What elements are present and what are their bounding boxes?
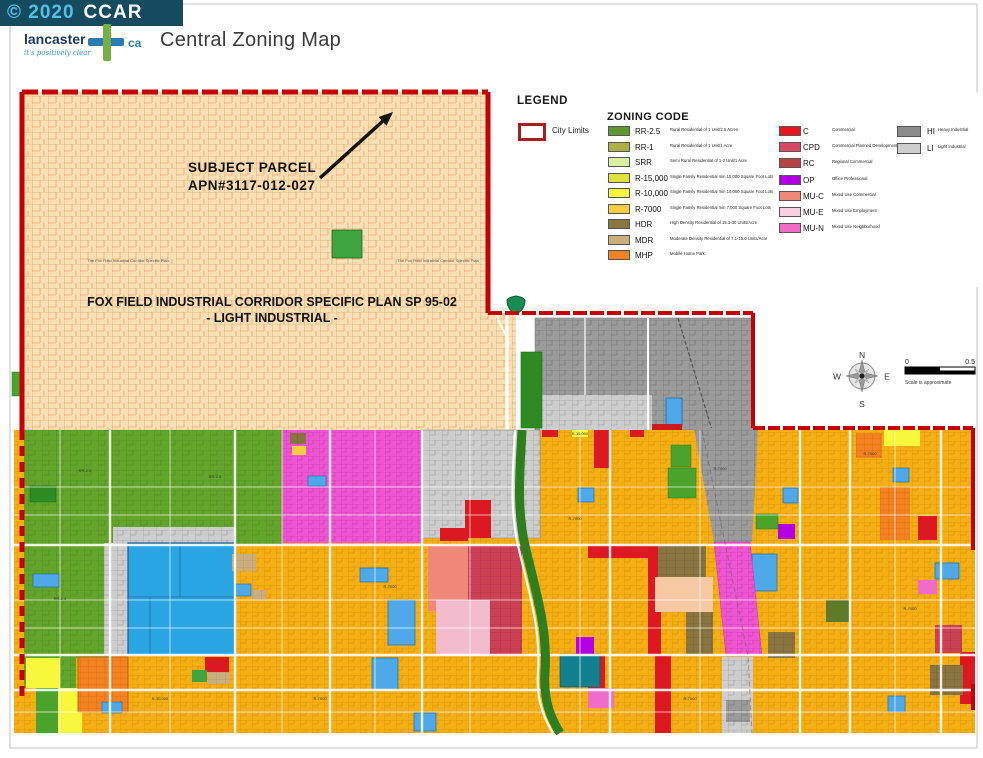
parcel-label: R-7000 xyxy=(863,451,877,456)
compass-west-label: W xyxy=(833,372,841,382)
city-limits-swatch xyxy=(518,123,546,141)
legend-row-MHP: MHPMobile Home Park xyxy=(608,250,778,266)
parcel-label: R-7000 xyxy=(683,696,697,701)
legend-desc-label: Rural Residential of 1 Unit/2.5 Acres xyxy=(670,127,738,132)
subject-parcel xyxy=(332,230,362,258)
legend-code-label: SRR xyxy=(635,157,652,168)
legend-desc-label: Heavy Industrial xyxy=(938,127,968,132)
legend-code-label: RR-1 xyxy=(635,142,654,153)
legend-swatch-LI xyxy=(897,143,921,154)
legend-desc-label: Mixed Use Commercial xyxy=(832,192,876,197)
legend-desc-label: Single Family Residential min 15,000 Squ… xyxy=(670,174,773,179)
legend-swatch-MU-N xyxy=(779,223,801,233)
zoning-code-title: ZONING CODE xyxy=(607,111,689,123)
legend-desc-label: Rural Residential of 1 Unit/1 Acre xyxy=(670,143,732,148)
legend-code-label: HI xyxy=(927,126,935,137)
legend-code-label: R-7000 xyxy=(635,204,661,215)
compass-south-label: S xyxy=(859,399,865,409)
watermark-brand: CCAR xyxy=(84,2,143,23)
compass-east-label: E xyxy=(884,372,890,382)
parcel-label: RR-2.5 xyxy=(209,474,222,479)
legend-row-OP: OPOffice Professional xyxy=(779,175,949,191)
specific-plan-label-1: FOX FIELD INDUSTRIAL CORRIDOR SPECIFIC P… xyxy=(87,295,457,309)
legend-swatch-R-10,000 xyxy=(608,188,630,198)
legend-swatch-SRR xyxy=(608,157,630,167)
subject-parcel-label-1: SUBJECT PARCEL xyxy=(188,160,316,175)
legend-row-R-15,000: R-15,000Single Family Residential min 15… xyxy=(608,173,778,189)
legend-row-HI: HIHeavy Industrial xyxy=(897,126,983,143)
parcel-label: R-7000 xyxy=(383,584,397,589)
legend-swatch-HDR xyxy=(608,219,630,229)
legend-panel: LEGEND City Limits ZONING CODE RR-2.5Rur… xyxy=(500,92,980,287)
legend-row-MDR: MDRModerate Density Residential of 7.1-1… xyxy=(608,235,778,251)
legend-swatch-C xyxy=(779,126,801,136)
legend-code-label: R-10,000 xyxy=(635,188,668,199)
legend-row-R-7000: R-7000Single Family Residential min 7,00… xyxy=(608,204,778,220)
legend-row-LI: LILight Industrial xyxy=(897,143,983,160)
legend-desc-label: Regional Commercial xyxy=(832,159,872,164)
legend-title: LEGEND xyxy=(517,95,568,107)
compass-rose: N S W E xyxy=(833,350,890,409)
parcel-label: RR-2.5 xyxy=(54,596,67,601)
legend-row-RC: RCRegional Commercial xyxy=(779,158,949,174)
scale-note: Scale is approximate xyxy=(905,380,952,386)
subject-parcel-label-2: APN#3117-012-027 xyxy=(188,178,315,193)
legend-code-label: LI xyxy=(927,143,934,154)
legend-code-label: CPD xyxy=(803,142,820,153)
legend-desc-label: Office Professional xyxy=(832,176,867,181)
legend-row-MU-E: MU-EMixed Use Employment xyxy=(779,207,949,223)
legend-row-RR-1: RR-1Rural Residential of 1 Unit/1 Acre xyxy=(608,142,778,158)
zoning-map-slide: SUBJECT PARCEL APN#3117-012-027 FOX FIEL… xyxy=(0,0,983,758)
legend-code-label: MU-C xyxy=(803,191,824,202)
parcel-label: R-15,000 xyxy=(572,431,589,436)
legend-column-industrial: HIHeavy IndustrialLILight Industrial xyxy=(897,126,983,159)
legend-desc-label: Single Family Residential min 7,000 Squa… xyxy=(670,205,771,210)
specific-plan-note-right: The Fox Field Industrial Corridor Specif… xyxy=(397,258,479,263)
watermark-year: © 2020 xyxy=(7,2,75,23)
parcel-label: R-7000 xyxy=(313,696,327,701)
legend-code-label: MU-N xyxy=(803,223,824,234)
legend-row-HDR: HDRHigh Density Residential of 15.1-30 U… xyxy=(608,219,778,235)
legend-desc-label: Commercial xyxy=(832,127,855,132)
legend-code-label: HDR xyxy=(635,219,652,230)
legend-desc-label: Mixed Use Employment xyxy=(832,208,877,213)
legend-code-label: RC xyxy=(803,158,815,169)
legend-swatch-RR-1 xyxy=(608,142,630,152)
legend-code-label: R-15,000 xyxy=(635,173,668,184)
legend-code-label: MU-E xyxy=(803,207,823,218)
heavy-industrial-area xyxy=(535,318,753,430)
legend-code-label: MDR xyxy=(635,235,653,246)
legend-swatch-RC xyxy=(779,158,801,168)
legend-swatch-OP xyxy=(779,175,801,185)
legend-swatch-R-7000 xyxy=(608,204,630,214)
legend-row-RR-2.5: RR-2.5Rural Residential of 1 Unit/2.5 Ac… xyxy=(608,126,778,142)
legend-swatch-MDR xyxy=(608,235,630,245)
zoning-parcels xyxy=(14,428,975,733)
legend-swatch-R-15,000 xyxy=(608,173,630,183)
lancaster-logo-text: lancaster xyxy=(24,31,85,47)
lancaster-tagline: it's positively clear xyxy=(24,49,91,57)
specific-plan-label-2: - LIGHT INDUSTRIAL - xyxy=(206,311,338,325)
city-limits-label: City Limits xyxy=(552,126,589,135)
parcel-label: R-7000 xyxy=(903,606,917,611)
legend-swatch-HI xyxy=(897,126,921,137)
parcel-label: R-10,000 xyxy=(152,696,169,701)
legend-row-SRR: SRRSemi Rural Residential of 1-2 Unit/1 … xyxy=(608,157,778,173)
legend-desc-label: High Density Residential of 15.1-30 Unit… xyxy=(670,220,757,225)
scale-start-label: 0 xyxy=(905,359,909,366)
lancaster-logo-suffix: ca xyxy=(128,36,141,50)
legend-swatch-MHP xyxy=(608,250,630,260)
legend-swatch-RR-2.5 xyxy=(608,126,630,136)
legend-row-R-10,000: R-10,000Single Family Residential min 10… xyxy=(608,188,778,204)
scale-end-label: 0.5 xyxy=(965,359,975,366)
legend-row-MU-N: MU-NMixed Use Neighborhood xyxy=(779,223,949,239)
scale-bar: 0 0.5 Scale is approximate xyxy=(905,359,975,386)
lancaster-cross-icon-vertical xyxy=(103,24,111,61)
compass-north-label: N xyxy=(859,350,865,360)
legend-column-residential: RR-2.5Rural Residential of 1 Unit/2.5 Ac… xyxy=(608,126,778,266)
legend-swatch-CPD xyxy=(779,142,801,152)
legend-swatch-MU-C xyxy=(779,191,801,201)
legend-desc-label: Mobile Home Park xyxy=(670,251,705,256)
legend-desc-label: Commercial Planned Development xyxy=(832,143,897,148)
legend-desc-label: Semi Rural Residential of 1-2 Unit/1 Acr… xyxy=(670,158,747,163)
legend-code-label: MHP xyxy=(635,250,653,261)
legend-row-MU-C: MU-CMixed Use Commercial xyxy=(779,191,949,207)
legend-desc-label: Light Industrial xyxy=(938,144,966,149)
legend-desc-label: Moderate Density Residential of 7.1-15.0… xyxy=(670,236,767,241)
legend-code-label: RR-2.5 xyxy=(635,126,660,137)
parcel-label: RR-2.5 xyxy=(79,468,92,473)
parcel-label: R-7000 xyxy=(568,516,582,521)
page-title: Central Zoning Map xyxy=(160,29,341,52)
parcel-label: R-7000 xyxy=(713,466,727,471)
legend-desc-label: Single Family Residential min 10,000 Squ… xyxy=(670,189,773,194)
watermark-banner: © 2020CCAR xyxy=(0,0,183,26)
legend-code-label: OP xyxy=(803,175,815,186)
legend-code-label: C xyxy=(803,126,809,137)
specific-plan-note-left: The Fox Field Industrial Corridor Specif… xyxy=(87,258,169,263)
legend-swatch-MU-E xyxy=(779,207,801,217)
legend-desc-label: Mixed Use Neighborhood xyxy=(832,224,880,229)
